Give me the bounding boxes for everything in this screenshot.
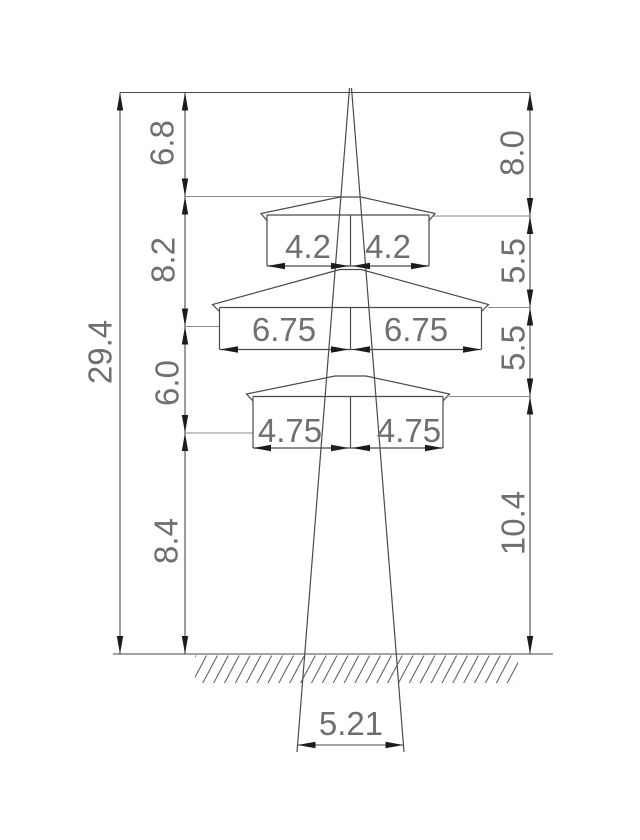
dim-left-seg-1: 6.8 bbox=[144, 120, 181, 166]
dim-right-seg-3: 5.5 bbox=[495, 325, 532, 371]
dim-left-seg-4: 8.4 bbox=[148, 518, 185, 564]
dim-overall-height: 29.4 bbox=[82, 320, 119, 384]
dim-crossarm-bottom-left: 4.75 bbox=[258, 412, 322, 449]
dim-right-seg-1: 8.0 bbox=[494, 130, 531, 176]
dim-crossarm-bottom-right: 4.75 bbox=[377, 412, 441, 449]
dim-right-seg-2: 5.5 bbox=[495, 238, 532, 284]
dim-left-seg-2: 8.2 bbox=[145, 237, 182, 283]
dim-crossarm-middle-left: 6.75 bbox=[252, 311, 316, 348]
drawing-page: 29.4 6.8 8.2 6.0 8.4 8.0 5.5 5.5 10.4 4.… bbox=[0, 0, 640, 840]
dim-crossarm-top-right: 4.2 bbox=[365, 228, 411, 265]
extension-lines bbox=[185, 197, 530, 434]
dim-crossarm-middle-right: 6.75 bbox=[384, 311, 448, 348]
dimension-labels: 29.4 6.8 8.2 6.0 8.4 8.0 5.5 5.5 10.4 4.… bbox=[82, 120, 532, 742]
dim-base-width: 5.21 bbox=[319, 705, 383, 742]
ground-hatch bbox=[195, 656, 518, 684]
dim-left-seg-3: 6.0 bbox=[149, 360, 186, 406]
dim-right-seg-4: 10.4 bbox=[495, 491, 532, 555]
tower-dimension-drawing: 29.4 6.8 8.2 6.0 8.4 8.0 5.5 5.5 10.4 4.… bbox=[0, 0, 640, 840]
base-width-dimension bbox=[298, 742, 404, 748]
dim-crossarm-top-left: 4.2 bbox=[285, 228, 331, 265]
ground bbox=[113, 654, 553, 683]
